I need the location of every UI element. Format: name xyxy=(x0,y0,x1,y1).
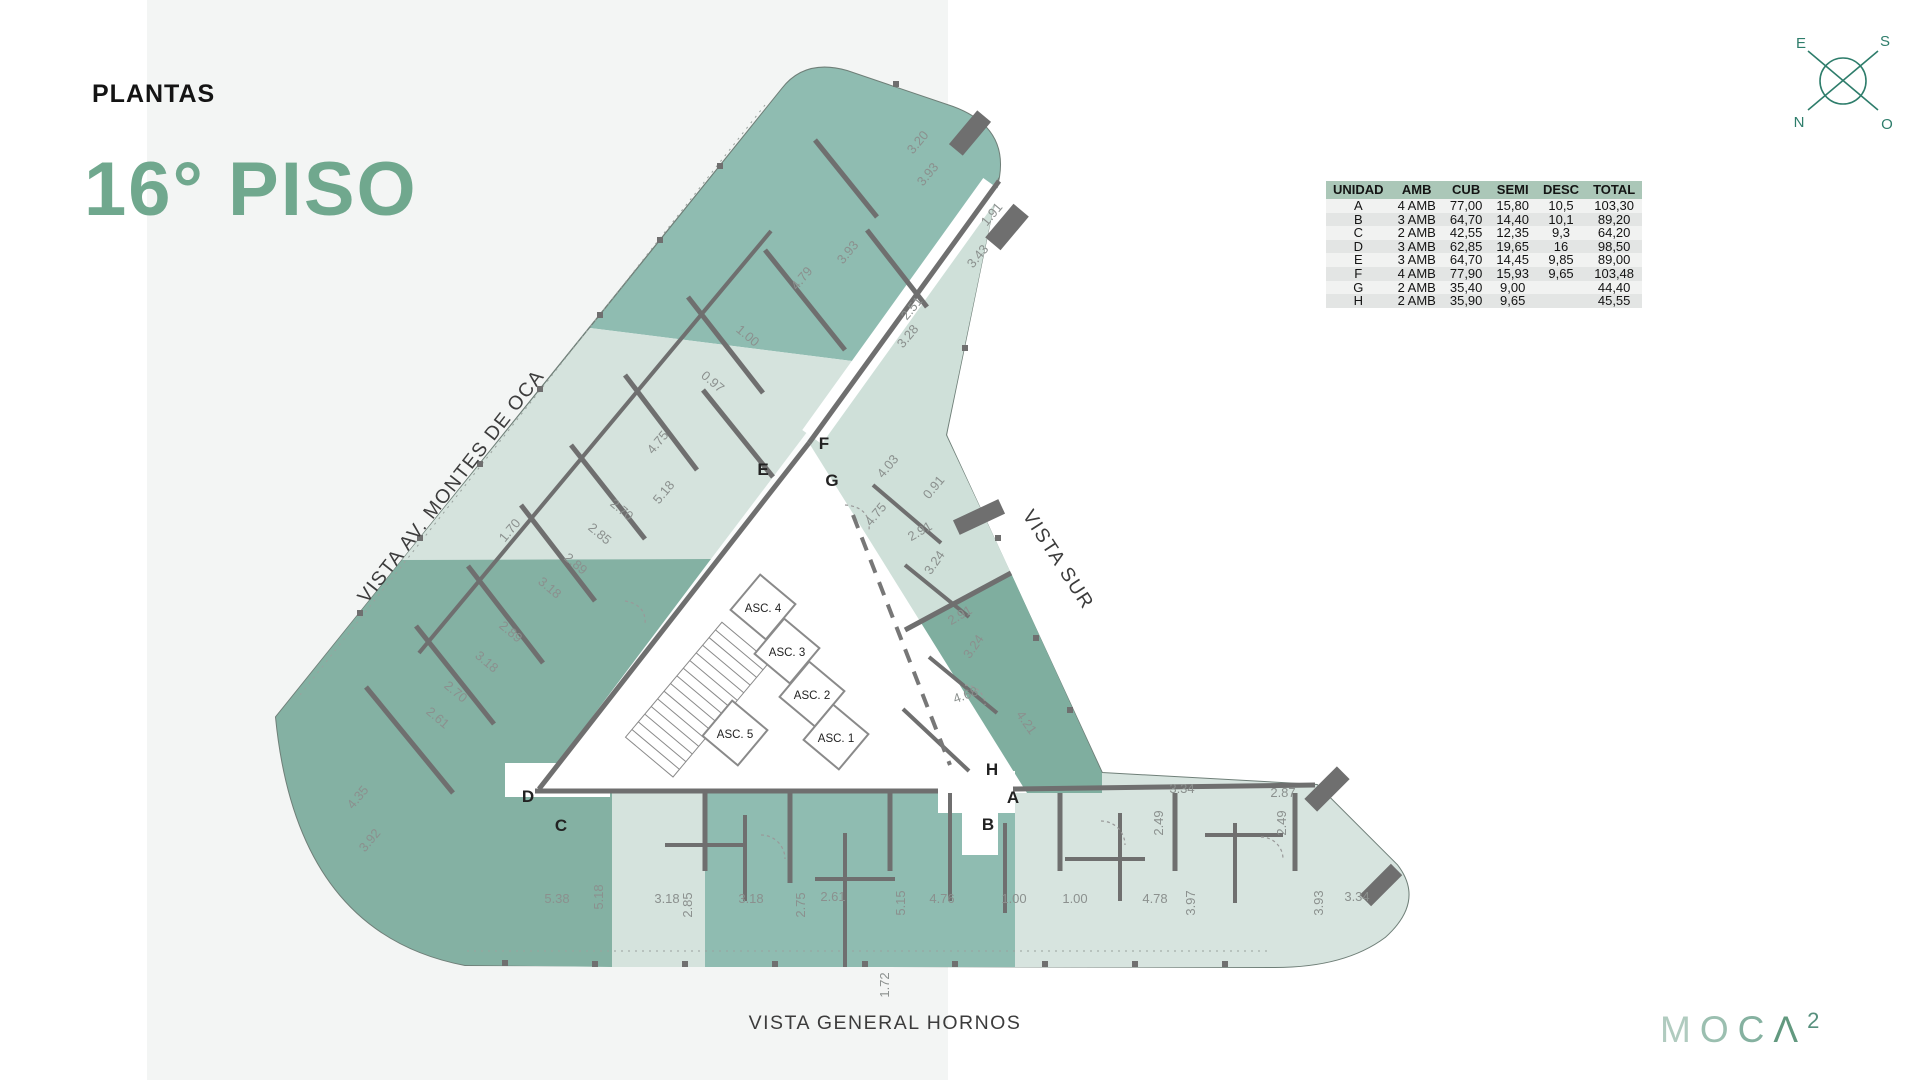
unit-label-e: E xyxy=(757,460,768,479)
brand-logo: MOCΛ2 xyxy=(1660,1008,1819,1051)
logo-letter: C xyxy=(1738,1009,1774,1050)
floor-plan: ASC. 4ASC. 3ASC. 2ASC. 1ASC. 5 3.203.931… xyxy=(205,45,1455,1045)
street-view-label: VISTA GENERAL HORNOS xyxy=(749,1012,1022,1034)
dimension-label: 3.34 xyxy=(1344,889,1369,904)
compass-n: N xyxy=(1794,114,1805,131)
table-cell xyxy=(1536,294,1586,308)
page-title: PLANTAS xyxy=(92,80,215,109)
table-cell: 10,5 xyxy=(1536,199,1586,213)
table-cell: 44,40 xyxy=(1586,281,1642,295)
table-cell: 9,3 xyxy=(1536,226,1586,240)
unit-label-d: D xyxy=(522,787,534,806)
table-cell: 15,93 xyxy=(1489,267,1536,281)
unit-a-area xyxy=(1015,773,1409,967)
dimension-label: 5.18 xyxy=(591,884,606,909)
dimension-label: 3.34 xyxy=(1169,781,1194,796)
unit-c-area xyxy=(612,793,705,967)
dimension-label: 2.85 xyxy=(680,892,695,917)
unit-label-b: B xyxy=(982,815,994,834)
dimension-label: 4.78 xyxy=(1142,891,1167,906)
dimension-label: 3.18 xyxy=(654,891,679,906)
table-cell: 15,80 xyxy=(1489,199,1536,213)
table-cell: 14,40 xyxy=(1489,213,1536,227)
table-header-cell: SEMI xyxy=(1489,181,1536,199)
table-header-cell: DESC xyxy=(1536,181,1586,199)
dimension-label: 2.49 xyxy=(1151,810,1166,835)
dimension-label: 3.97 xyxy=(1183,890,1198,915)
elevator-label: ASC. 4 xyxy=(745,603,782,615)
unit-label-a: A xyxy=(1007,788,1019,807)
dimension-label: 3.18 xyxy=(738,891,763,906)
logo-letter: O xyxy=(1700,1009,1738,1050)
unit-label-g: G xyxy=(825,471,838,490)
table-cell: 103,30 xyxy=(1586,199,1642,213)
table-cell: 9,00 xyxy=(1489,281,1536,295)
compass-o: O xyxy=(1881,116,1893,132)
dimension-label: 2.49 xyxy=(1274,810,1289,835)
table-cell: 64,20 xyxy=(1586,226,1642,240)
elevator-label: ASC. 1 xyxy=(818,733,854,745)
dimension-label: 2.61 xyxy=(820,889,845,904)
table-cell: 12,35 xyxy=(1489,226,1536,240)
elevator-label: ASC. 5 xyxy=(717,729,753,741)
table-cell: 9,65 xyxy=(1489,294,1536,308)
compass-e: E xyxy=(1796,35,1806,52)
unit-label-c: C xyxy=(555,816,567,835)
table-cell: 89,00 xyxy=(1586,253,1642,267)
dimension-label: 1.00 xyxy=(1062,891,1087,906)
compass-s: S xyxy=(1880,33,1890,50)
table-cell: 89,20 xyxy=(1586,213,1642,227)
table-cell: 9,65 xyxy=(1536,267,1586,281)
dimension-label: 2.87 xyxy=(1270,785,1295,800)
table-cell: 14,45 xyxy=(1489,253,1536,267)
table-cell: 10,1 xyxy=(1536,213,1586,227)
dimension-label: 5.38 xyxy=(544,891,569,906)
unit-label-f: F xyxy=(819,434,829,453)
dimension-label: 5.15 xyxy=(893,890,908,915)
logo-superscript: 2 xyxy=(1807,1008,1819,1033)
elevator-label: ASC. 3 xyxy=(769,647,805,659)
compass-icon: E S N O xyxy=(1790,26,1894,132)
table-cell: 45,55 xyxy=(1586,294,1642,308)
dimension-label: 2.75 xyxy=(793,892,808,917)
dimension-label: 1.72 xyxy=(877,972,892,997)
table-cell: 103,48 xyxy=(1586,267,1642,281)
table-cell: 19,65 xyxy=(1489,240,1536,254)
table-header-cell: TOTAL xyxy=(1586,181,1642,199)
unit-label-h: H xyxy=(986,760,998,779)
table-cell xyxy=(1536,281,1586,295)
table-cell: 98,50 xyxy=(1586,240,1642,254)
street-view-label: VISTA SUR xyxy=(1018,506,1098,614)
dimension-label: 3.93 xyxy=(1311,890,1326,915)
table-cell: 16 xyxy=(1536,240,1586,254)
elevator-label: ASC. 2 xyxy=(794,690,830,702)
logo-letter: Λ xyxy=(1773,1009,1807,1050)
logo-letter: M xyxy=(1660,1009,1700,1050)
table-cell: 9,85 xyxy=(1536,253,1586,267)
dimension-label: 1.00 xyxy=(1001,891,1026,906)
dimension-label: 4.76 xyxy=(929,891,954,906)
